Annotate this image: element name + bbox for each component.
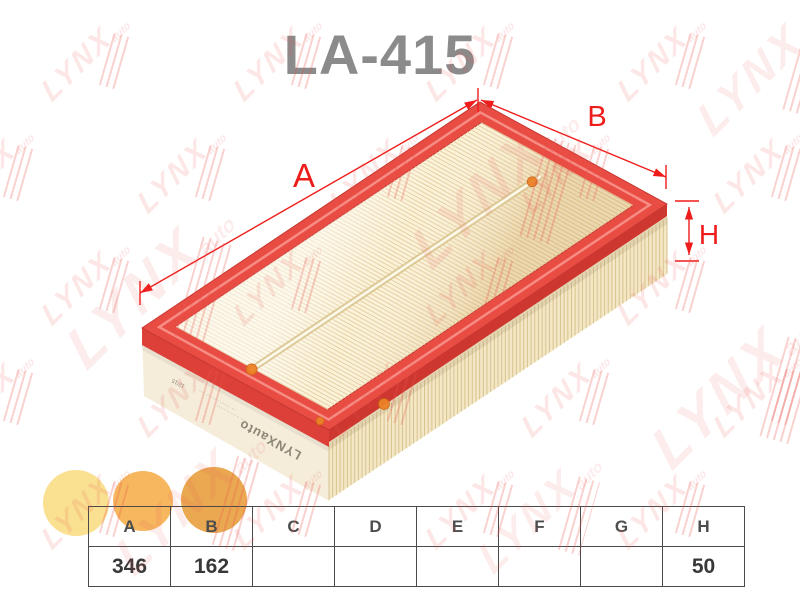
table-header-d: D	[335, 507, 417, 547]
table-header-a: A	[89, 507, 171, 547]
table-header-f: F	[499, 507, 581, 547]
product-card: LYNXautoLYNXautoLYNXautoLYNXautoLYNXauto…	[0, 0, 800, 600]
dimension-table: ABCDEFGH34616250	[88, 506, 745, 587]
table-value-e	[417, 547, 499, 587]
table-header-g: G	[581, 507, 663, 547]
table-value-a: 346	[89, 547, 171, 587]
dimension-label-b: B	[587, 101, 606, 133]
dimension-label-h: H	[699, 219, 719, 250]
table-header-e: E	[417, 507, 499, 547]
air-filter-illustration	[142, 102, 667, 501]
table-value-h: 50	[663, 547, 745, 587]
table-value-b: 162	[171, 547, 253, 587]
table-header-c: C	[253, 507, 335, 547]
table-value-g	[581, 547, 663, 587]
table-value-f	[499, 547, 581, 587]
table-header-b: B	[171, 507, 253, 547]
table-header-h: H	[663, 507, 745, 547]
table-value-c	[253, 547, 335, 587]
table-value-d	[335, 547, 417, 587]
dimension-label-a: A	[293, 157, 315, 194]
